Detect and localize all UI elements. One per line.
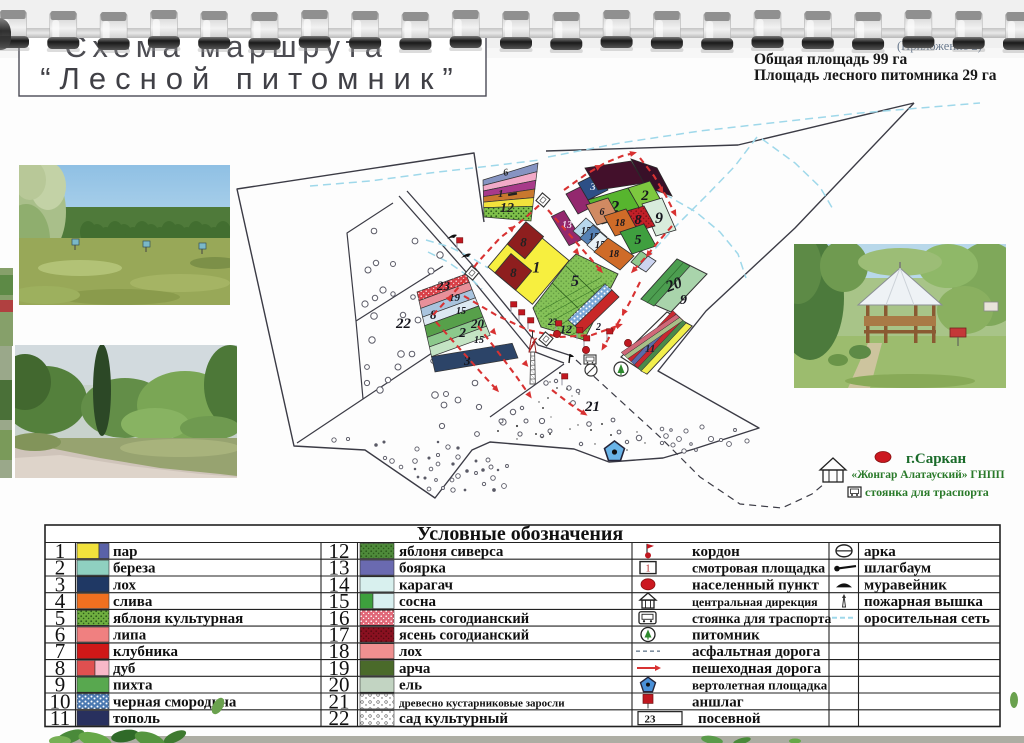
svg-text:18: 18 xyxy=(615,218,625,229)
svg-text:2: 2 xyxy=(640,188,649,204)
svg-text:пешеходная дорога: пешеходная дорога xyxy=(692,661,822,677)
svg-text:асфальтная дорога: асфальтная дорога xyxy=(692,644,821,660)
svg-text:9: 9 xyxy=(680,293,687,308)
svg-text:23: 23 xyxy=(436,278,451,293)
svg-text:муравейник: муравейник xyxy=(864,577,947,593)
svg-text:9: 9 xyxy=(655,210,663,227)
svg-text:«Жонгар Алатауский» ГНПП: «Жонгар Алатауский» ГНПП xyxy=(851,469,1004,481)
svg-text:населенный пункт: населенный пункт xyxy=(692,577,820,593)
svg-text:шлагбаум: шлагбаум xyxy=(864,561,931,577)
svg-text:1: 1 xyxy=(532,259,540,276)
svg-text:ель: ель xyxy=(399,678,422,694)
svg-text:Общая площадь 99 га: Общая площадь 99 га xyxy=(754,51,907,68)
svg-text:1: 1 xyxy=(498,188,504,200)
svg-text:береза: береза xyxy=(113,561,156,577)
svg-text:“Лесной питомник”: “Лесной питомник” xyxy=(40,61,462,96)
svg-text:дуб: дуб xyxy=(113,661,135,677)
svg-text:22: 22 xyxy=(395,316,412,332)
svg-text:11: 11 xyxy=(50,706,70,730)
svg-text:2: 2 xyxy=(458,326,466,341)
svg-text:15: 15 xyxy=(474,335,484,346)
svg-text:боярка: боярка xyxy=(399,561,446,577)
svg-text:5: 5 xyxy=(635,233,642,248)
svg-text:пихта: пихта xyxy=(113,678,153,694)
svg-text:смотровая площадка: смотровая площадка xyxy=(692,562,825,577)
svg-text:лох: лох xyxy=(113,577,137,593)
svg-text:клубника: клубника xyxy=(113,644,179,660)
svg-text:стоянка для траспорта: стоянка для траспорта xyxy=(865,485,989,499)
svg-text:Условные обозначения: Условные обозначения xyxy=(417,523,624,545)
svg-text:пар: пар xyxy=(113,544,138,560)
svg-text:5: 5 xyxy=(571,273,579,290)
svg-text:ясень согодианский: ясень согодианский xyxy=(399,628,529,644)
svg-text:арча: арча xyxy=(399,661,431,677)
svg-text:15: 15 xyxy=(456,306,466,317)
svg-text:тополь: тополь xyxy=(113,711,160,727)
svg-text:13: 13 xyxy=(562,220,572,231)
svg-text:2: 2 xyxy=(595,322,601,333)
svg-text:вертолетная площадка: вертолетная площадка xyxy=(692,678,828,693)
svg-text:12: 12 xyxy=(500,201,514,216)
svg-text:ясень согодианский: ясень согодианский xyxy=(399,611,529,627)
svg-text:питомник: питомник xyxy=(692,628,760,644)
svg-text:яблоня сиверса: яблоня сиверса xyxy=(399,544,504,560)
svg-text:аншлаг: аншлаг xyxy=(692,694,744,710)
svg-text:23: 23 xyxy=(645,714,657,726)
svg-text:лох: лох xyxy=(399,644,423,660)
svg-text:пожарная вышка: пожарная вышка xyxy=(864,594,983,610)
svg-text:сосна: сосна xyxy=(399,594,436,610)
svg-text:8: 8 xyxy=(510,265,517,280)
svg-text:древесно кустарниковые заросли: древесно кустарниковые заросли xyxy=(399,697,565,709)
svg-text:20: 20 xyxy=(470,316,485,331)
svg-text:кордон: кордон xyxy=(692,544,740,560)
svg-text:оросительная сеть: оросительная сеть xyxy=(864,611,990,627)
svg-text:18: 18 xyxy=(609,249,619,260)
svg-text:карагач: карагач xyxy=(399,577,453,593)
svg-text:г.Саркан: г.Саркан xyxy=(906,451,966,467)
svg-text:посевной: посевной xyxy=(698,711,761,727)
svg-text:Площадь лесного питомника 29 г: Площадь лесного питомника 29 га xyxy=(754,67,997,84)
svg-text:1: 1 xyxy=(646,564,651,575)
svg-text:стоянка для траспорта: стоянка для траспорта xyxy=(692,611,832,626)
svg-text:центральная дирекция: центральная дирекция xyxy=(692,595,818,609)
svg-text:арка: арка xyxy=(864,544,896,560)
svg-text:липа: липа xyxy=(113,628,147,644)
svg-text:яблоня культурная: яблоня культурная xyxy=(113,611,243,627)
svg-text:21: 21 xyxy=(584,399,600,415)
svg-text:сад культурный: сад культурный xyxy=(399,711,508,727)
svg-text:слива: слива xyxy=(113,594,153,610)
svg-text:11: 11 xyxy=(645,343,655,355)
svg-text:22: 22 xyxy=(329,706,350,730)
svg-text:8: 8 xyxy=(520,235,527,250)
